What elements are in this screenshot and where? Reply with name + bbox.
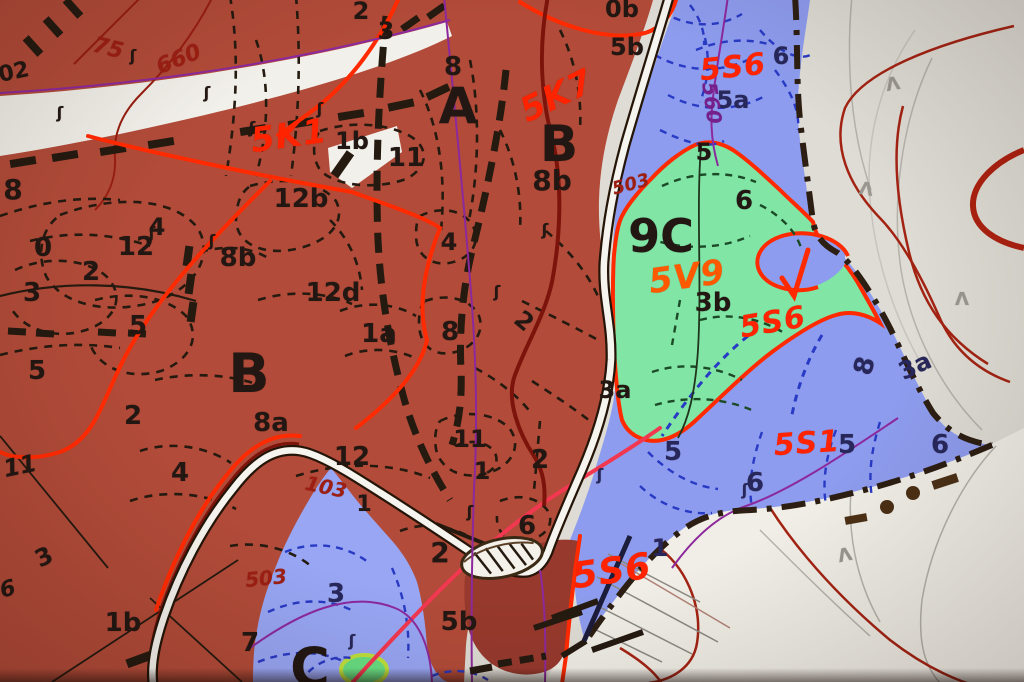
map-label: 503 (611, 171, 652, 198)
map-label: 660 (154, 41, 205, 79)
map-label: 8 (441, 319, 459, 345)
map-label: 12d (306, 280, 361, 306)
map-label: 8 (850, 354, 880, 378)
map-label: 6 (735, 188, 753, 214)
map-label: 2 (124, 403, 142, 429)
map-label: ʃ (597, 467, 604, 483)
map-label: Λ (885, 75, 902, 95)
map-label: 5 (28, 358, 46, 384)
map-labels-layer: 028012423552B8a8b12b12d1a824238AB1b118b0… (0, 0, 1024, 682)
map-label: ʃ (742, 482, 749, 498)
map-label: 11 (1, 451, 39, 481)
map-label: 503 (244, 566, 288, 590)
map-label: 02 (0, 59, 31, 87)
map-label: 5S6 (570, 549, 653, 596)
map-label: ʃ (542, 222, 549, 238)
map-label: 6 (0, 577, 18, 602)
map-label: 2 (510, 306, 538, 335)
map-label: 6 (518, 513, 536, 539)
map-label: Λ (955, 291, 969, 309)
map-label: 103 (304, 473, 349, 501)
map-label: ʃ (130, 48, 137, 64)
map-label: 0 (34, 235, 52, 261)
map-label: 3 (23, 280, 41, 306)
map-label: 12b (274, 186, 329, 212)
map-label: 3a (599, 378, 632, 402)
map-label: 0b (605, 0, 639, 21)
map-label: ʃ (57, 105, 64, 121)
map-label: 6 (773, 44, 790, 68)
map-label: B (228, 347, 269, 401)
map-label: 1a (361, 321, 397, 347)
map-label: 2 (353, 0, 370, 23)
map-label: 2 (430, 539, 449, 567)
map-label: 8a (253, 410, 289, 436)
map-label: Λ (836, 546, 853, 567)
map-label: 12 (334, 444, 370, 470)
map-label: 5b (441, 609, 478, 635)
map-label: 8b (532, 167, 572, 195)
map-label: 8 (3, 176, 22, 204)
map-label: B (540, 119, 578, 169)
map-viewport: 028012423552B8a8b12b12d1a824238AB1b118b0… (0, 0, 1024, 682)
map-label: 75 (90, 35, 125, 64)
map-label: ʃ (317, 101, 324, 117)
map-label: 5S1 (773, 427, 841, 462)
map-label: Λ (858, 180, 874, 200)
map-label: 1b (335, 129, 369, 153)
map-label: 5 (129, 313, 147, 339)
map-label: 3 (378, 19, 395, 43)
map-label: ʃ (209, 233, 216, 249)
map-label: 5S6 (698, 50, 767, 87)
map-label: A (439, 81, 478, 131)
map-label: 2 (82, 259, 100, 285)
map-label: ʃ (467, 504, 474, 520)
map-label: ʃ (149, 225, 156, 241)
map-label: 5S6 (738, 302, 809, 343)
map-label: 5b (610, 35, 644, 59)
map-label: ʃ (204, 85, 211, 101)
map-label: 5V9 (647, 255, 728, 299)
map-label: 1 (474, 459, 491, 483)
map-label: 3a (895, 348, 935, 384)
map-label: 6 (931, 432, 949, 458)
map-label: ʃ (349, 633, 356, 649)
map-label: ʃ (494, 284, 501, 300)
map-label: 1 (356, 494, 371, 516)
map-label: 4 (171, 460, 189, 486)
map-label: 2 (531, 447, 549, 473)
map-label: 5 (664, 439, 682, 465)
map-label: 5 (696, 140, 713, 164)
map-label: 4 (441, 230, 458, 254)
map-label: 5K1 (249, 114, 330, 158)
map-label: 1b (105, 610, 142, 636)
map-label: 8b (220, 245, 257, 271)
map-label: 11 (388, 145, 424, 171)
map-label: 3 (327, 581, 345, 607)
map-label: 560 (699, 81, 725, 125)
map-label: 3 (31, 543, 56, 572)
map-label: ʃ (249, 120, 256, 136)
map-label: 11 (453, 427, 486, 451)
map-label: 9C (628, 213, 694, 259)
map-label: C (290, 641, 330, 682)
map-label: 1 (652, 536, 669, 560)
map-label: 7 (241, 630, 259, 656)
